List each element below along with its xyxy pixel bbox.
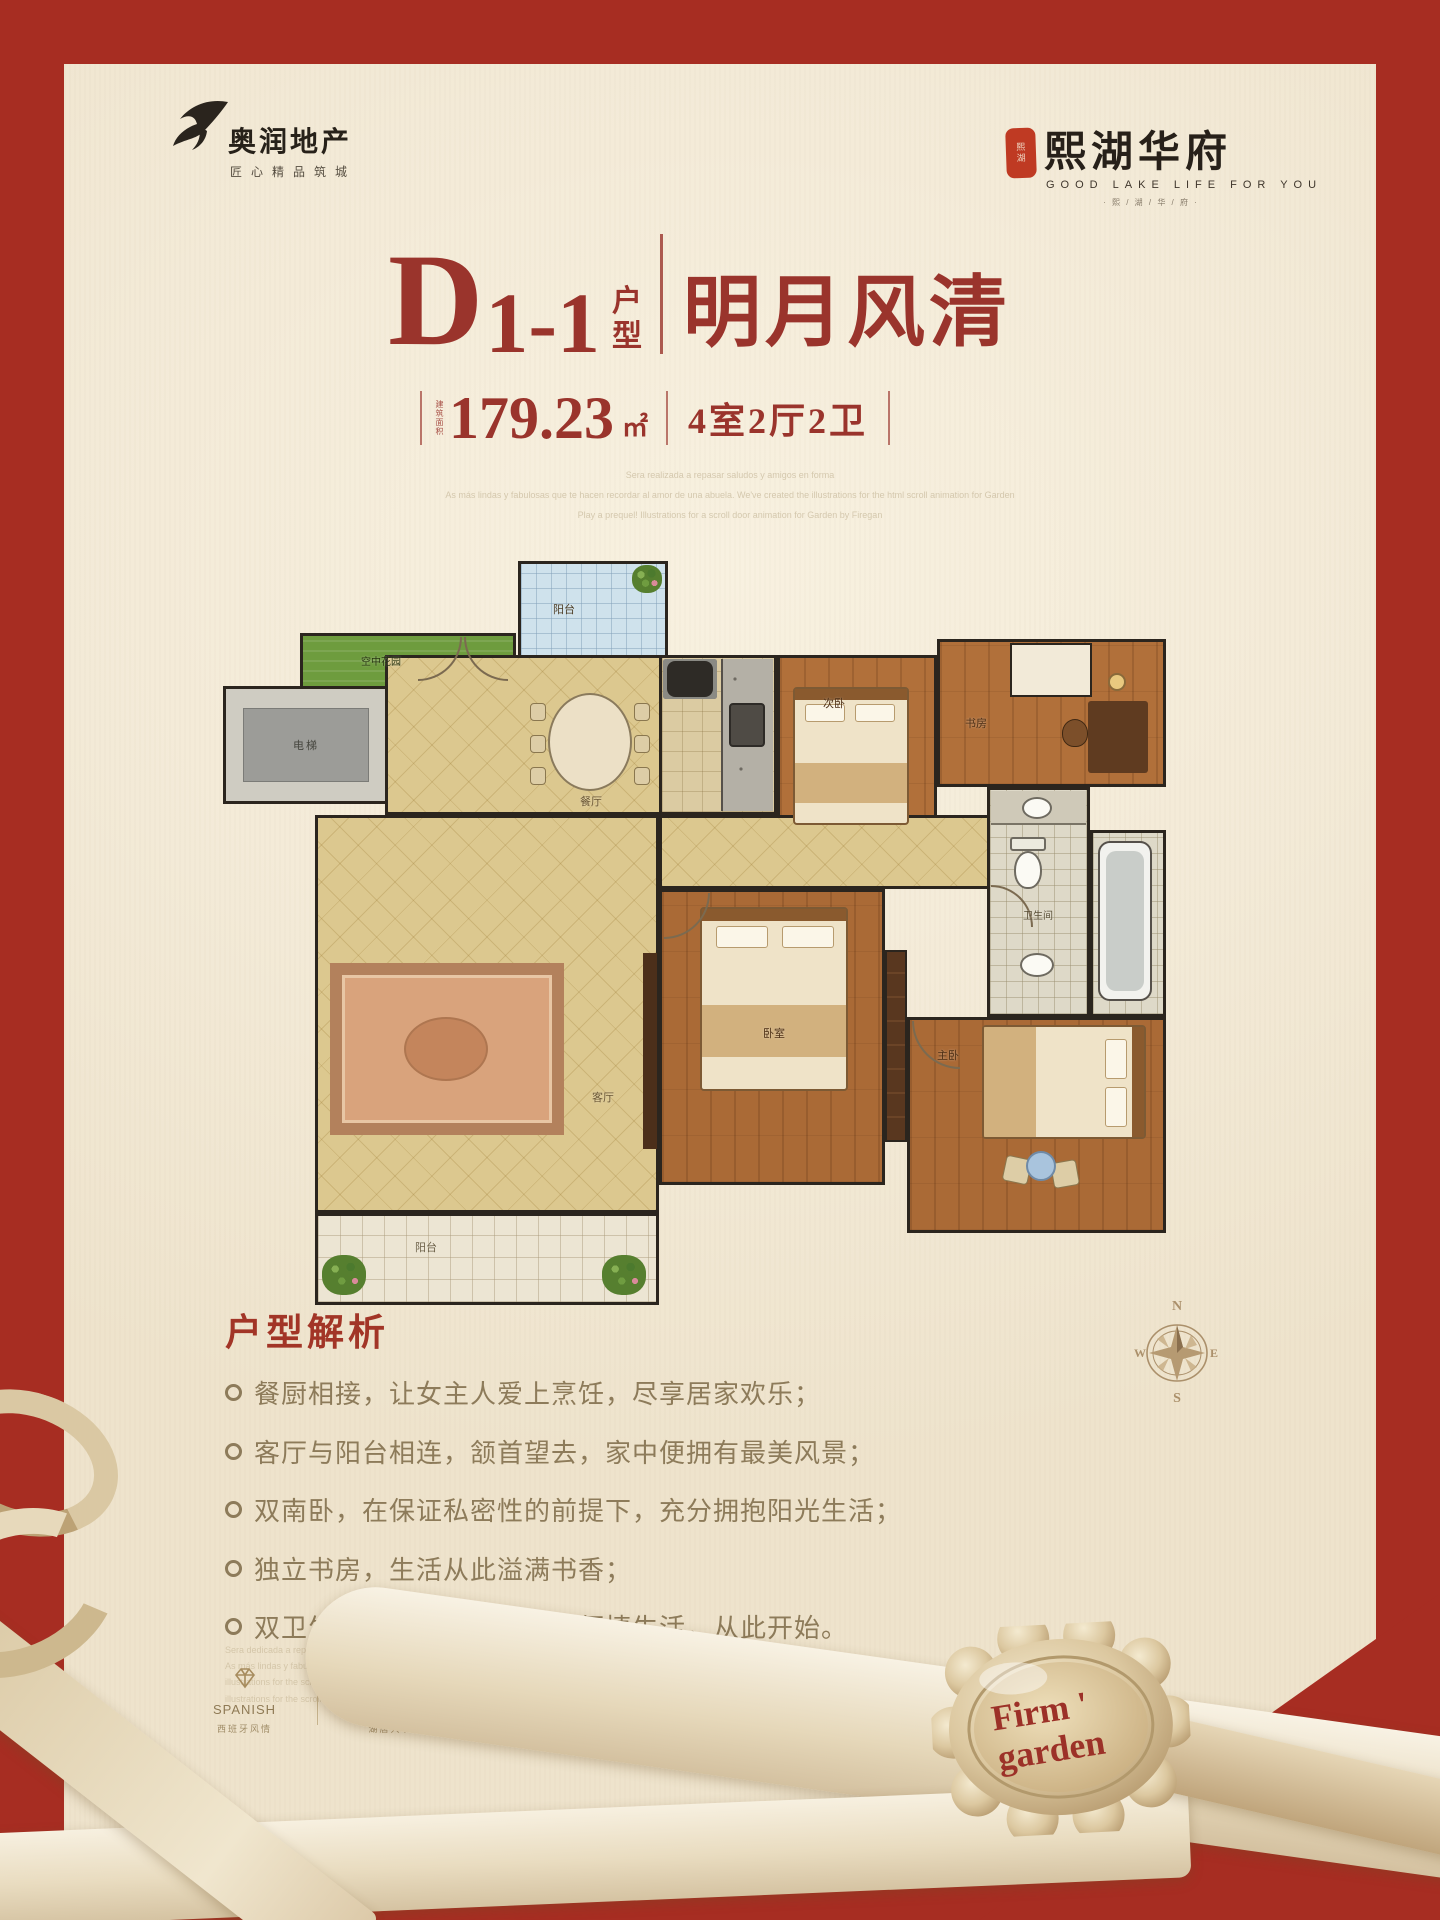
study-closet bbox=[1010, 643, 1092, 697]
elevator-cab: 电梯 bbox=[243, 708, 369, 782]
spec-bar bbox=[666, 391, 668, 445]
gem-icon bbox=[233, 1666, 257, 1690]
room-label: 空中花园 bbox=[326, 653, 436, 668]
bath-sink bbox=[1020, 953, 1054, 977]
room-label: 书房 bbox=[946, 715, 1006, 731]
study-desk bbox=[1088, 701, 1148, 773]
bullet-ring-icon bbox=[225, 1501, 242, 1518]
compass-w: W bbox=[1134, 1346, 1146, 1360]
tv-cabinet bbox=[643, 953, 657, 1149]
analysis-bullet: 双南卧，在保证私密性的前提下，充分拥抱阳光生活； bbox=[225, 1495, 905, 1528]
bed-south bbox=[700, 907, 848, 1091]
room-label: 卧室 bbox=[744, 1025, 804, 1041]
poster: 奥润地产 匠心精品筑城 熙湖 熙湖华府 GOOD LAKE LIFE FOR Y… bbox=[0, 0, 1440, 1920]
unit-title: D 1-1 户型 明月风清 bbox=[388, 234, 1011, 358]
dining-chair bbox=[634, 735, 650, 753]
feature-en: SPANISH bbox=[172, 1702, 317, 1717]
room-label: 阳台 bbox=[534, 601, 594, 617]
developer-name: 奥润地产 bbox=[228, 120, 352, 160]
unit-letter: D bbox=[388, 242, 483, 358]
wardrobe bbox=[885, 950, 907, 1142]
room-label: 次卧 bbox=[804, 695, 864, 711]
room-label: 电梯 bbox=[293, 737, 319, 753]
bullet-ring-icon bbox=[225, 1618, 242, 1635]
master-table bbox=[1026, 1151, 1056, 1181]
developer-bird-icon bbox=[166, 98, 232, 156]
project-tagline-deco: · 熙 / 湖 / 华 / 府 · bbox=[1026, 197, 1276, 208]
analysis-bullet: 客厅与阳台相连，颔首望去，家中便拥有最美风景； bbox=[225, 1437, 905, 1470]
room-label: 阳台 bbox=[396, 1239, 456, 1255]
project-name: 熙湖华府 bbox=[1044, 118, 1232, 179]
intro-line: Play a prequel! Illustrations for a scro… bbox=[240, 506, 1220, 526]
bath-basin bbox=[1022, 797, 1052, 819]
study-lamp bbox=[1108, 673, 1126, 691]
kitchen-sink bbox=[729, 703, 765, 747]
analysis-bullet: 独立书房，生活从此溢满书香； bbox=[225, 1554, 905, 1587]
toilet bbox=[1010, 837, 1046, 851]
planter-left bbox=[322, 1255, 366, 1295]
room-label: 主卧 bbox=[918, 1047, 978, 1063]
analysis-heading: 户型解析 bbox=[225, 1302, 389, 1356]
room-count: 4室2厅2卫 bbox=[688, 392, 868, 444]
feature-spanish: SPANISH 西班牙风情 bbox=[172, 1666, 317, 1735]
unit-suffix: 户型 bbox=[612, 285, 646, 354]
bed-master bbox=[982, 1025, 1146, 1139]
dining-chair bbox=[530, 703, 546, 721]
area-label: 建筑面积 bbox=[434, 400, 445, 436]
project-tagline-en: GOOD LAKE LIFE FOR YOU bbox=[1046, 179, 1322, 191]
dining-chair bbox=[530, 767, 546, 785]
compass-s: S bbox=[1173, 1391, 1181, 1406]
floor-plan: 电梯 bbox=[204, 555, 1166, 1307]
developer-tagline: 匠心精品筑城 bbox=[230, 163, 356, 180]
project-seal-chars: 熙湖 bbox=[1014, 142, 1028, 164]
dining-chair bbox=[530, 735, 546, 753]
room-label: 卫生间 bbox=[996, 907, 1080, 922]
analysis-bullet: 餐厨相接，让女主人爱上烹饪，尽享居家欢乐； bbox=[225, 1378, 905, 1411]
unit-name: 明月风清 bbox=[683, 274, 1011, 352]
intro-paragraph: Sera realizada a repasar saludos y amigo… bbox=[240, 466, 1220, 525]
feature-cn: 西班牙风情 bbox=[172, 1722, 317, 1735]
living-rug-medallion bbox=[404, 1017, 488, 1081]
wax-seal: Firm ' garden bbox=[927, 1617, 1196, 1840]
spec-row: 建筑面积 179.23 ㎡ 4室2厅2卫 bbox=[420, 388, 890, 448]
compass-e: E bbox=[1210, 1346, 1218, 1360]
bathtub-inner bbox=[1106, 851, 1144, 991]
dining-table bbox=[548, 693, 632, 791]
dining-chair bbox=[634, 767, 650, 785]
kitchen-stove bbox=[663, 659, 717, 699]
spec-bar bbox=[420, 391, 422, 445]
dining-chair bbox=[634, 703, 650, 721]
bullet-ring-icon bbox=[225, 1560, 242, 1577]
plant-balcony-top bbox=[632, 565, 662, 593]
intro-line: As más lindas y fabulosas que te hacen r… bbox=[240, 486, 1220, 506]
intro-line: Sera realizada a repasar saludos y amigo… bbox=[240, 466, 1220, 486]
bullet-ring-icon bbox=[225, 1443, 242, 1460]
room-label: 餐厅 bbox=[556, 793, 626, 809]
study-chair bbox=[1062, 719, 1088, 747]
spec-bar bbox=[888, 391, 890, 445]
compass-icon: N W E S bbox=[1133, 1296, 1221, 1406]
toilet-bowl bbox=[1014, 851, 1042, 889]
project-seal-icon: 熙湖 bbox=[1005, 127, 1037, 178]
room-corridor bbox=[659, 815, 991, 889]
planter-right bbox=[602, 1255, 646, 1295]
room-label: 客厅 bbox=[568, 1089, 638, 1105]
bullet-ring-icon bbox=[225, 1384, 242, 1401]
title-divider bbox=[660, 234, 663, 354]
area-value: 179.23 bbox=[449, 388, 614, 448]
area-unit: ㎡ bbox=[622, 407, 648, 444]
unit-number: 1-1 bbox=[485, 289, 600, 358]
compass-n: N bbox=[1172, 1299, 1182, 1314]
